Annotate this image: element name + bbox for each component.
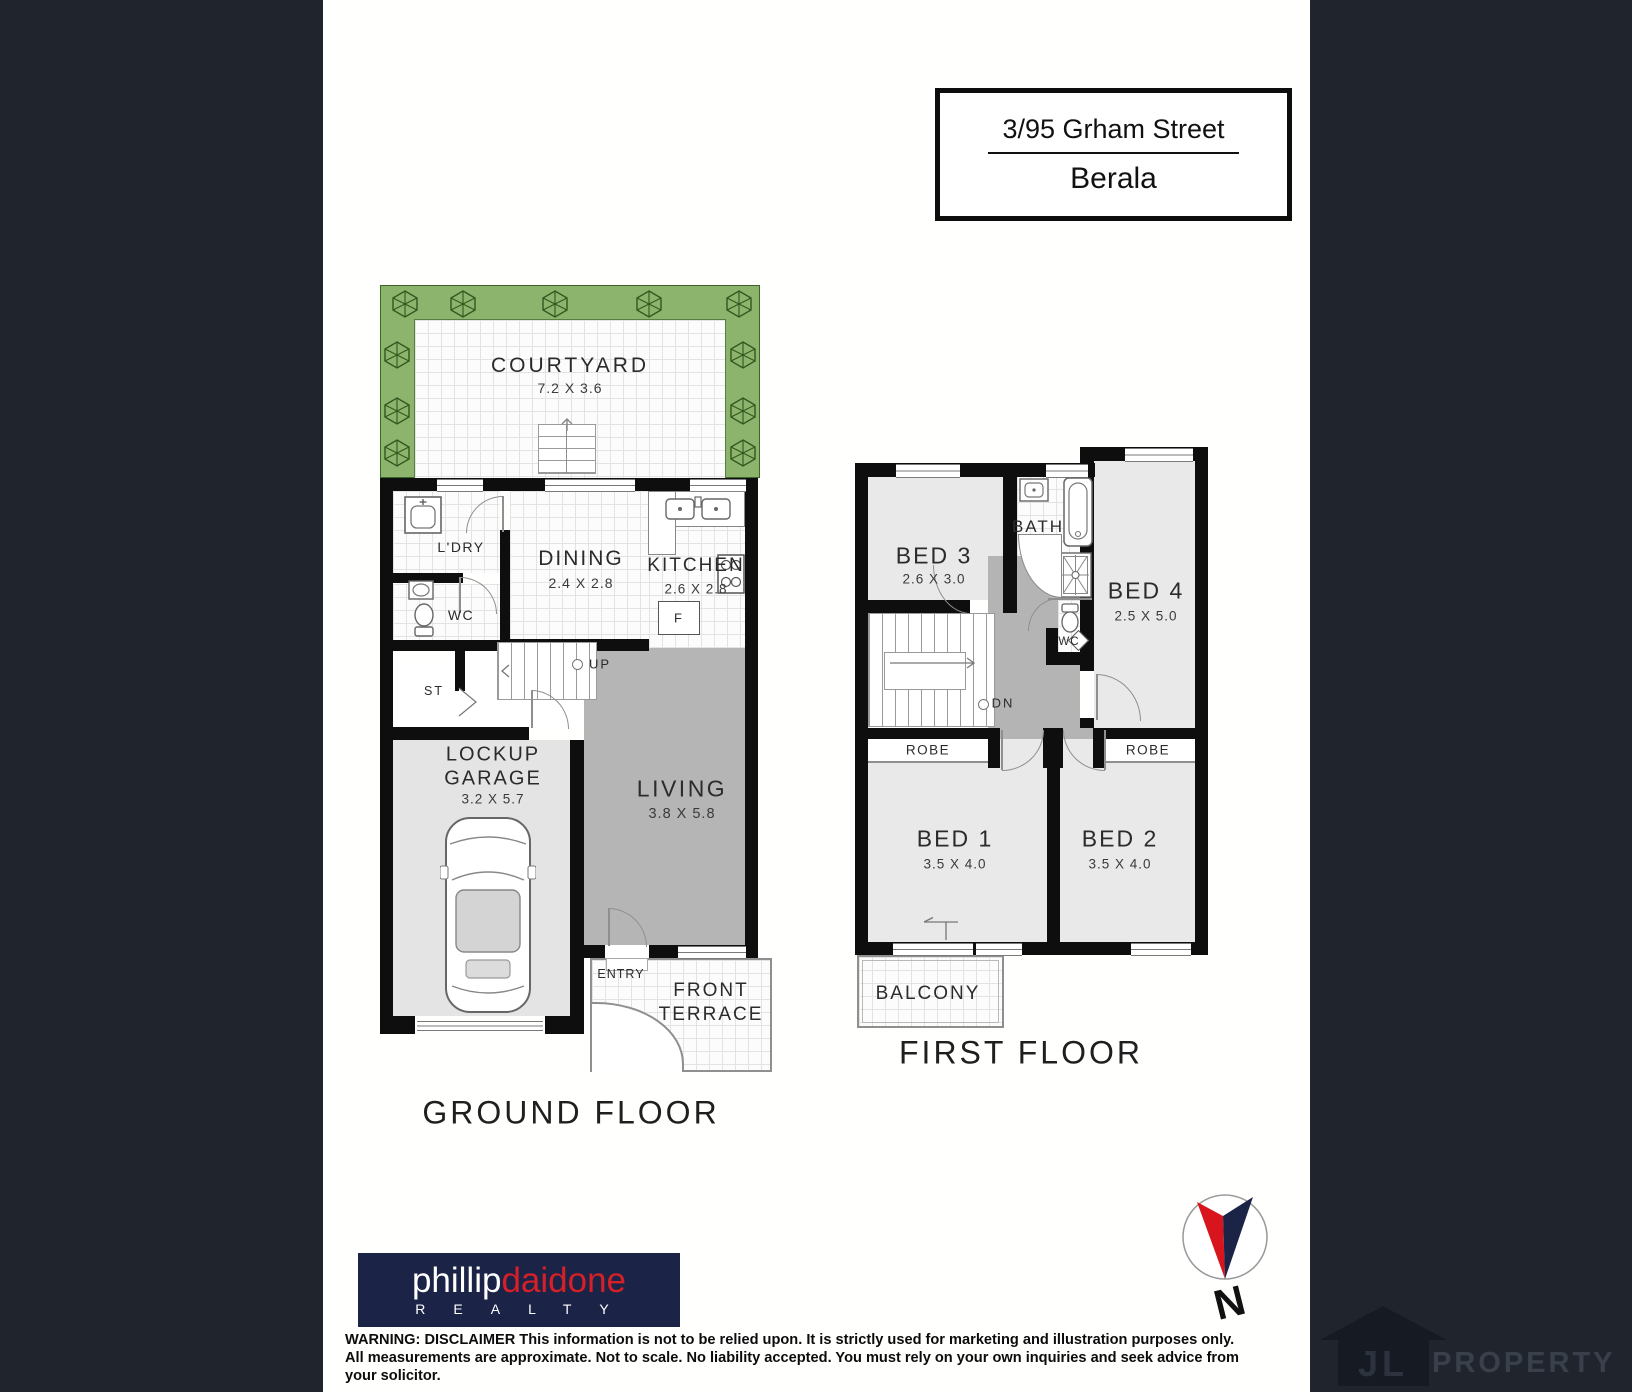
- window: [1125, 448, 1193, 462]
- balcony-door: [976, 943, 1022, 956]
- wall: [855, 728, 1000, 739]
- wall: [455, 651, 465, 691]
- tree-icon: [382, 438, 412, 468]
- bed2-label: BED 2: [1082, 826, 1158, 853]
- garage-label-2: GARAGE: [444, 768, 542, 791]
- window: [1046, 464, 1088, 478]
- window: [678, 946, 746, 959]
- stair-marker: [572, 659, 583, 670]
- ground-floor-title: GROUND FLOOR: [422, 1095, 719, 1132]
- shower-icon: [1059, 552, 1092, 598]
- bed3-label: BED 3: [896, 543, 972, 570]
- door-leaf: [1104, 730, 1106, 770]
- bath-sink-icon: [1019, 478, 1049, 502]
- agency-logo: phillipdaidone REALTY: [358, 1253, 680, 1327]
- dn-label: DN: [992, 696, 1015, 711]
- laundry-tub-icon: [404, 496, 442, 534]
- garage-dims: 3.2 X 5.7: [461, 792, 524, 807]
- wall: [1047, 768, 1060, 955]
- wc-first-label: WC: [1058, 636, 1079, 648]
- wall: [1046, 652, 1094, 665]
- wall: [1195, 447, 1208, 955]
- up-label: UP: [589, 657, 611, 672]
- entry-label: ENTRY: [597, 967, 644, 981]
- compass: N: [1163, 1182, 1288, 1327]
- jl-house-icon: JL: [1316, 1302, 1451, 1386]
- door-leaf: [1001, 730, 1003, 770]
- tree-icon: [540, 289, 570, 319]
- stairs-up: [497, 642, 597, 700]
- courtyard-label: COURTYARD: [491, 354, 649, 378]
- window: [437, 479, 483, 492]
- up-arrow-icon: [558, 416, 576, 432]
- bed1-label: BED 1: [917, 826, 993, 853]
- toilet-icon: [412, 602, 436, 638]
- robe-line: [1105, 761, 1195, 763]
- agency-name-red: daidone: [501, 1261, 626, 1300]
- wall: [380, 727, 529, 740]
- wall: [1043, 728, 1063, 768]
- bed4-dims: 2.5 X 5.0: [1114, 609, 1177, 624]
- address-suburb: Berala: [1070, 162, 1157, 196]
- watermark-initials: JL: [1358, 1343, 1408, 1384]
- stair-marker: [978, 699, 989, 710]
- bath-label: BATH: [1012, 517, 1064, 537]
- wall: [570, 740, 584, 958]
- garage-door: [417, 1021, 543, 1031]
- tree-icon: [728, 340, 758, 370]
- balcony-door-arrow: [916, 916, 960, 942]
- living-label: LIVING: [637, 776, 727, 803]
- wall: [545, 1016, 584, 1034]
- store-label: ST: [424, 684, 444, 698]
- fridge-label: F: [674, 611, 684, 626]
- tree-icon: [382, 340, 412, 370]
- balcony-label: BALCONY: [876, 983, 981, 1005]
- agency-name-white: phillip: [412, 1261, 502, 1300]
- dining-label: DINING: [538, 547, 624, 571]
- living-dims: 3.8 X 5.8: [648, 806, 715, 822]
- toilet-icon: [1059, 603, 1081, 633]
- address-street: 3/95 Grham Street: [988, 114, 1238, 154]
- wall: [393, 640, 510, 651]
- garage-label-1: LOCKUP: [446, 744, 540, 767]
- kitchen-label: KITCHEN: [647, 555, 744, 577]
- bed2-dims: 3.5 X 4.0: [1088, 857, 1151, 872]
- robe-left-label: ROBE: [906, 743, 950, 758]
- agency-tagline: REALTY: [401, 1301, 636, 1317]
- car-icon: [440, 808, 536, 1018]
- wall: [745, 478, 758, 958]
- door-leaf: [502, 496, 504, 532]
- wall: [500, 530, 510, 584]
- bed4-label: BED 4: [1108, 578, 1184, 605]
- kitchen-dims: 2.6 X 2.8: [664, 582, 727, 597]
- tree-icon: [382, 396, 412, 426]
- chevron-left-icon: [499, 663, 511, 679]
- compass-n-label: N: [1209, 1276, 1250, 1327]
- robe-line: [868, 761, 988, 763]
- bed1-dims: 3.5 X 4.0: [923, 857, 986, 872]
- wall: [988, 728, 1000, 768]
- watermark-name: PROPERTY: [1432, 1347, 1616, 1380]
- window: [893, 943, 973, 956]
- wall: [380, 478, 393, 1034]
- terrace-label-1: FRONT: [673, 980, 748, 1002]
- window: [896, 464, 960, 478]
- wall: [1080, 718, 1094, 728]
- robe-right-label: ROBE: [1126, 743, 1170, 758]
- tree-icon: [724, 289, 754, 319]
- wall: [1003, 600, 1017, 613]
- first-floor-title: FIRST FLOOR: [899, 1035, 1143, 1072]
- basin-icon: [408, 580, 434, 600]
- laundry-label: L'DRY: [437, 539, 484, 555]
- tree-icon: [728, 396, 758, 426]
- bed3-dims: 2.6 X 3.0: [902, 572, 965, 587]
- courtyard-dims: 7.2 X 3.6: [537, 380, 602, 396]
- tree-icon: [728, 438, 758, 468]
- wall: [1093, 728, 1208, 739]
- bathtub-icon: [1063, 477, 1093, 547]
- sliding-door: [545, 479, 635, 492]
- wall: [855, 463, 868, 955]
- tree-icon: [634, 289, 664, 319]
- terrace-label-2: TERRACE: [659, 1004, 764, 1026]
- wc-label: WC: [448, 607, 474, 623]
- floorplan-page: 3/95 Grham Street Berala COURTYARD 7.2 X…: [0, 0, 1632, 1392]
- stairs-arrow: [888, 656, 980, 670]
- kitchen-sink-icon: [664, 496, 732, 522]
- window: [1131, 943, 1191, 956]
- store-door: [457, 687, 479, 717]
- dining-dims: 2.4 X 2.8: [548, 575, 613, 591]
- address-box: 3/95 Grham Street Berala: [935, 88, 1292, 221]
- wall: [393, 1016, 415, 1034]
- tree-icon: [448, 289, 478, 319]
- disclaimer-text: WARNING: DISCLAIMER This information is …: [345, 1331, 1251, 1385]
- tree-icon: [390, 289, 420, 319]
